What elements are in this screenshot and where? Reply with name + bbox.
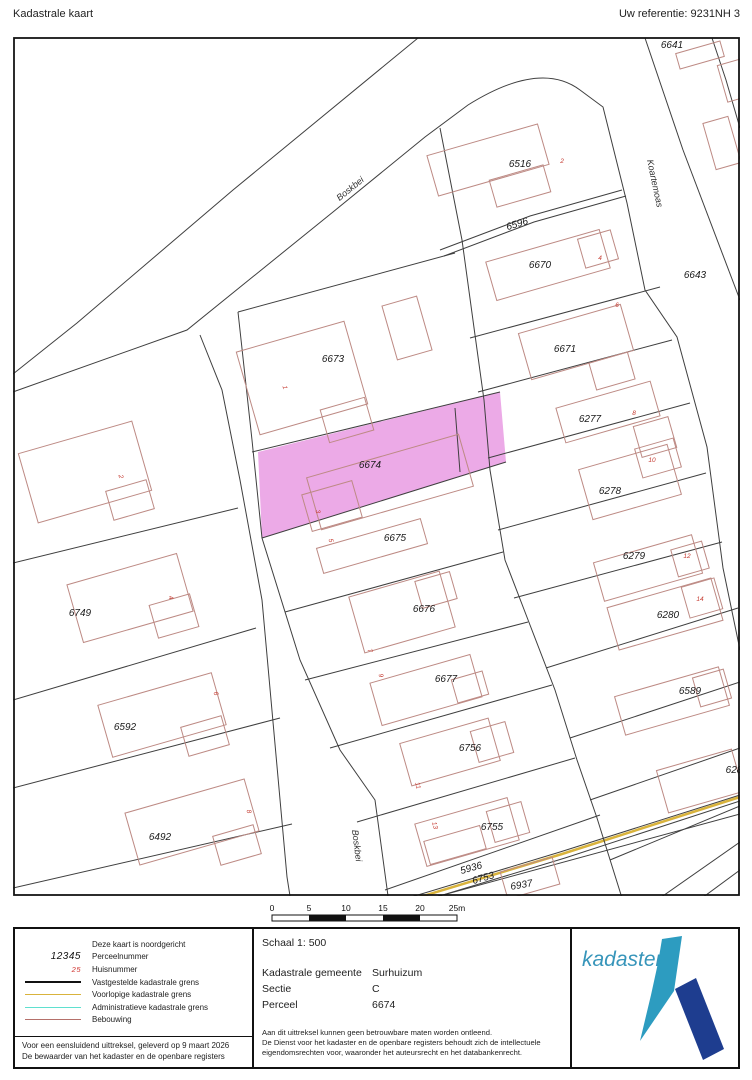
parcel-number-label: 628	[726, 765, 740, 776]
building-outline	[717, 58, 740, 102]
building-outline	[106, 480, 155, 520]
legend-label: Perceelnummer	[92, 952, 148, 961]
kadaster-logo-text: kadaster	[582, 948, 664, 971]
scale-tick-label: 15	[378, 903, 388, 913]
building-outline	[415, 572, 457, 609]
street-label: Koartemoas	[645, 159, 665, 209]
disclaimer-line: Aan dit uittreksel kunnen geen betrouwba…	[262, 1028, 492, 1037]
house-number-label: 14	[696, 596, 704, 603]
scale-bar-outline	[272, 915, 457, 921]
legend-row: Vastgestelde kadastrale grens	[21, 976, 247, 989]
building-outline	[149, 594, 199, 638]
kadastrale-grens-line	[13, 628, 256, 700]
kadastrale-grens-line	[440, 128, 622, 896]
parcel-number-label: 6674	[359, 460, 382, 471]
house-number-label: 13	[430, 821, 439, 830]
parcel-number-label: 6755	[481, 822, 504, 833]
kadastrale-grens-line	[408, 795, 740, 896]
sectie-value: C	[372, 983, 380, 995]
legend-rows: Deze kaart is noordgericht12345Perceelnu…	[21, 938, 247, 1026]
building-outline	[633, 417, 676, 458]
kadastrale-grens-line	[440, 190, 622, 250]
kadastrale-grens-line	[357, 758, 575, 822]
legend-row: 12345Perceelnummer	[21, 951, 247, 964]
sectie-row: Sectie C	[262, 983, 291, 995]
perceel-value: 6674	[372, 999, 395, 1011]
parcel-number-label: 6937	[510, 878, 534, 893]
parcel-number-label: 6592	[114, 722, 137, 733]
kadastrale-grens-line	[305, 622, 528, 680]
kadastrale-grens-line	[590, 748, 740, 800]
scale-bar-segment	[383, 915, 420, 921]
parcel-number-label: 6278	[599, 486, 622, 497]
legend-row: 25Huisnummer	[21, 963, 247, 976]
gemeente-row: Kadastrale gemeente Surhuizum	[262, 967, 362, 979]
building-outline	[578, 230, 619, 268]
street-label: Boskbei	[350, 829, 364, 863]
parcel-number-label: 6673	[322, 354, 345, 365]
building-outline	[589, 352, 635, 390]
parcel-number-label: 6749	[69, 608, 92, 619]
legend-row: Voorlopige kadastrale grens	[21, 988, 247, 1001]
voorlopige-grens-line	[410, 797, 740, 896]
legend-symbol: 12345	[21, 951, 81, 962]
house-number-label: 8	[245, 809, 253, 815]
legend-label: Deze kaart is noordgericht	[92, 940, 185, 949]
legend-symbol	[21, 1007, 81, 1009]
legend: Deze kaart is noordgericht12345Perceelnu…	[15, 929, 254, 1067]
house-number-label: 1	[281, 385, 289, 391]
kadaster-logo: kadaster	[572, 929, 740, 1067]
legend-symbol	[21, 981, 81, 984]
kadastrale-grens-line	[285, 552, 503, 612]
building-outline	[382, 296, 432, 360]
legend-label: Bebouwing	[92, 1015, 132, 1024]
legend-label: Huisnummer	[92, 965, 137, 974]
building-outline	[518, 304, 633, 379]
scale-tick-label: 25m	[449, 903, 466, 913]
parcel-number-label: 6641	[661, 40, 683, 51]
kadastrale-grens-line	[13, 508, 238, 563]
scale-text: Schaal 1: 500	[262, 937, 326, 949]
kadastrale-grens-line	[514, 542, 722, 598]
reference-number: Uw referentie: 9231NH 3	[619, 8, 740, 20]
building-outline	[400, 718, 501, 786]
legend-row: Bebouwing	[21, 1014, 247, 1027]
sectie-label: Sectie	[262, 983, 291, 995]
parcel-number-label: 6643	[684, 270, 707, 281]
building-outline	[579, 444, 682, 519]
scale-tick-label: 0	[270, 903, 275, 913]
building-outline	[415, 798, 519, 867]
kadastrale-grens-line	[330, 685, 552, 748]
legend-label: Voorlopige kadastrale grens	[92, 990, 191, 999]
legend-row: Deze kaart is noordgericht	[21, 938, 247, 951]
house-number-label: 7	[366, 648, 374, 654]
scale-tick-label: 5	[307, 903, 312, 913]
kadaster-logo-cell: kadaster	[572, 929, 740, 1067]
page-title: Kadastrale kaart	[13, 8, 93, 20]
kadastrale-grens-line	[444, 196, 626, 256]
perceel-row: Perceel 6674	[262, 999, 298, 1011]
scale-bar: 0510152025m	[240, 899, 500, 925]
scale-tick-label: 10	[341, 903, 351, 913]
legend-symbol: 25	[21, 965, 81, 974]
building-outline	[98, 673, 226, 757]
house-number-label: 12	[683, 553, 691, 560]
parcel-number-label: 6671	[554, 344, 576, 355]
legend-label: Administratieve kadastrale grens	[92, 1003, 208, 1012]
footer: Deze kaart is noordgericht12345Perceelnu…	[13, 927, 740, 1069]
kadastrale-grens-line	[13, 718, 280, 788]
kadaster-extract-page: Kadastrale kaart Uw referentie: 9231NH 3…	[0, 0, 752, 1080]
parcel-number-label: 6492	[149, 832, 172, 843]
building-outline	[615, 667, 730, 735]
highlighted-parcel-6674	[258, 392, 506, 538]
perceel-label: Perceel	[262, 999, 298, 1011]
kadastrale-grens-line	[645, 38, 683, 150]
kadastrale-grens-line	[498, 473, 706, 530]
building-outline	[125, 779, 259, 865]
scale-bar-segment	[309, 915, 346, 921]
cadastral-map: BoskbeiKoartemoasBoskbei6641651665966670…	[13, 37, 740, 896]
parcel-number-label: 6676	[413, 604, 436, 615]
legend-symbol	[21, 1019, 81, 1020]
house-number-label: 9	[377, 673, 385, 679]
gemeente-value: Surhuizum	[372, 967, 422, 979]
house-number-label: 4	[598, 255, 602, 262]
parcel-number-label: 6670	[529, 260, 552, 271]
kadastrale-grens-line	[712, 38, 740, 128]
house-number-label: 5	[327, 538, 335, 544]
building-outline	[656, 749, 740, 813]
parcel-number-label: 6756	[459, 743, 482, 754]
parcel-number-label: 6280	[657, 610, 680, 621]
building-outline	[349, 571, 455, 653]
legend-symbol	[21, 994, 81, 996]
scale-tick-label: 20	[415, 903, 425, 913]
house-number-label: 8	[632, 410, 636, 417]
kadastrale-grens-line	[470, 287, 660, 338]
parcel-number-label: 6596	[505, 216, 530, 233]
legend-label: Vastgestelde kadastrale grens	[92, 978, 199, 987]
disclaimer-line: De Dienst voor het kadaster en de openba…	[262, 1038, 541, 1047]
house-number-label: 2	[559, 158, 564, 165]
legend-divider	[15, 1036, 252, 1037]
gemeente-label: Kadastrale gemeente	[262, 967, 362, 979]
parcel-number-label: 6279	[623, 551, 646, 562]
parcel-number-label: 6675	[384, 533, 407, 544]
building-outline	[556, 381, 660, 443]
kadastrale-grens-line	[546, 608, 738, 668]
building-outline	[635, 438, 682, 478]
parcel-number-label: 6589	[679, 686, 702, 697]
building-outline	[703, 116, 740, 169]
keeper-note: De bewaarder van het kadaster en de open…	[22, 1052, 250, 1061]
house-number-label: 11	[413, 781, 422, 790]
building-outline	[470, 722, 513, 763]
kadastrale-grens-line	[702, 870, 740, 896]
building-outline	[213, 825, 262, 865]
house-number-label: 2	[116, 473, 124, 480]
building-outline	[236, 321, 367, 435]
parcel-info: Schaal 1: 500 Kadastrale gemeente Surhui…	[254, 929, 572, 1067]
kadastrale-grens-line	[660, 842, 740, 896]
house-number-label: 10	[648, 457, 656, 464]
building-outline	[489, 165, 551, 207]
parcel-number-label: 6277	[579, 414, 602, 425]
house-number-label: 6	[615, 302, 619, 309]
building-outline	[370, 655, 482, 726]
kadastrale-grens-line	[13, 38, 418, 374]
logo-bar-shape	[675, 978, 724, 1060]
building-outline	[593, 535, 702, 602]
kadastrale-grens-line	[488, 403, 690, 458]
delivery-note: Voor een eensluidend uittreksel, gelever…	[22, 1041, 250, 1050]
building-outline	[18, 421, 151, 523]
parcel-number-label: 6677	[435, 674, 458, 685]
parcel-number-label: 6516	[509, 159, 532, 170]
legend-row: Administratieve kadastrale grens	[21, 1001, 247, 1014]
disclaimer-line: eigendomsrechten voor, waaronder het aut…	[262, 1048, 522, 1057]
